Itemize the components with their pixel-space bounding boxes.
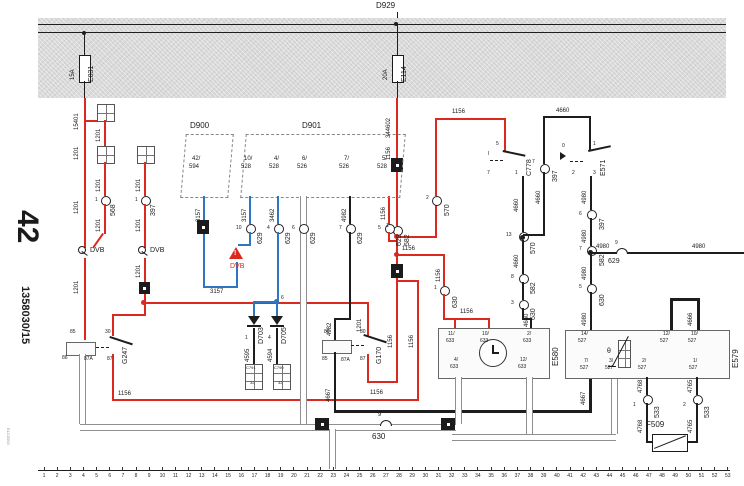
- wire-segment: [435, 204, 437, 238]
- label-4-: 4/: [454, 358, 458, 363]
- label-15401: 15401: [74, 113, 80, 130]
- label-2-: 2/: [642, 359, 646, 364]
- label-1201: 1201: [96, 129, 102, 142]
- wire-segment: [367, 354, 369, 381]
- ruler-number: 22: [315, 473, 325, 479]
- inline-connector-icon: [540, 164, 550, 174]
- multi-pin-connector-icon: [97, 104, 115, 122]
- label-1: 1: [245, 336, 248, 341]
- ruler-number: 50: [683, 473, 693, 479]
- label-87: 87: [360, 357, 366, 362]
- ruler-tick: [464, 467, 465, 471]
- ruler-number: 42: [578, 473, 588, 479]
- label-13: 13: [506, 233, 512, 238]
- label-1: 1: [386, 224, 389, 229]
- ruler-number: 48: [657, 473, 667, 479]
- label-1-: 1/: [693, 359, 697, 364]
- inline-plug-icon: [139, 282, 150, 294]
- ruler-tick: [491, 467, 492, 471]
- label-4980: 4980: [596, 244, 609, 250]
- label-32: 32: [250, 381, 254, 385]
- wire-segment: [435, 118, 506, 120]
- wire-segment: [253, 301, 255, 316]
- inline-plug-icon: [315, 418, 329, 430]
- label-1156: 1156: [402, 246, 415, 252]
- label-d929: D929: [376, 2, 395, 10]
- white-wire: [79, 354, 86, 424]
- ruler-number: 15: [223, 473, 233, 479]
- ruler-number: 51: [697, 473, 707, 479]
- diode-icon: [271, 316, 283, 325]
- inline-connector-icon: [519, 300, 529, 310]
- wire-segment: [590, 252, 744, 254]
- label-12-: 12/: [663, 332, 670, 337]
- label-1156: 1156: [452, 109, 465, 115]
- wire-segment: [38, 24, 726, 25]
- label-86: 86: [62, 356, 68, 361]
- label-527: 527: [660, 339, 668, 344]
- label-4660: 4660: [556, 108, 569, 114]
- wire-segment: [334, 352, 336, 410]
- wire-segment: [543, 172, 545, 234]
- label-42: 42: [12, 210, 42, 243]
- ruler-number: 39: [539, 473, 549, 479]
- label-1: 1: [434, 286, 437, 291]
- label-1358030-15: 1358030/15: [19, 286, 30, 344]
- wire-segment: [112, 399, 418, 401]
- label-1201: 1201: [96, 219, 102, 232]
- label-5-: 5/: [382, 156, 387, 162]
- ruler-tick: [727, 467, 728, 471]
- ruler-tick: [228, 467, 229, 471]
- wire-segment: [398, 254, 445, 256]
- label-1: 1: [135, 198, 138, 203]
- wire-segment: [397, 81, 398, 98]
- ruler-number: 28: [394, 473, 404, 479]
- ruler-tick: [662, 467, 663, 471]
- label-1: 1: [593, 142, 596, 147]
- wire-segment: [367, 302, 369, 336]
- wire-segment: [84, 258, 86, 340]
- wire-segment: [396, 278, 398, 381]
- wire-segment: [589, 377, 592, 411]
- ruler-tick: [83, 467, 84, 471]
- label-4768: 4768: [638, 380, 644, 393]
- label-d703: D703: [258, 327, 265, 344]
- label-e580: E580: [552, 347, 560, 366]
- wire-segment: [417, 280, 419, 401]
- label-5: 5: [496, 142, 499, 147]
- inline-connector-icon: [587, 210, 597, 220]
- ruler-number: 3: [65, 473, 75, 479]
- label-4660: 4660: [514, 199, 520, 212]
- ruler-tick: [201, 467, 202, 471]
- ruler-number: 43: [591, 473, 601, 479]
- inline-connector-icon: [246, 224, 256, 234]
- switch-blade: [110, 336, 133, 345]
- ruler-number: 47: [644, 473, 654, 479]
- wire-segment: [112, 314, 114, 336]
- label-1201: 1201: [136, 265, 142, 278]
- wire-segment: [543, 116, 545, 164]
- label-527: 527: [580, 366, 588, 371]
- label-10-: 10/: [691, 332, 698, 337]
- label-12-: 12/: [520, 358, 527, 363]
- label-1201: 1201: [74, 281, 80, 294]
- label-1: 1: [633, 403, 636, 408]
- ruler-number: 11: [171, 473, 181, 479]
- ruler-tick: [307, 467, 308, 471]
- ruler-number: 4: [78, 473, 88, 479]
- ruler-number: 31: [434, 473, 444, 479]
- inline-connector-icon: [440, 286, 450, 296]
- ruler-tick: [267, 467, 268, 471]
- label-8: 8: [511, 275, 514, 280]
- label-4667: 4667: [326, 389, 332, 402]
- label-3: 3: [511, 301, 514, 306]
- ruler-tick: [504, 467, 505, 471]
- label-527: 527: [638, 366, 646, 371]
- label-630: 630: [372, 433, 385, 441]
- warning-exclamation: !: [234, 250, 236, 257]
- ruler-number: 7: [118, 473, 128, 479]
- ruler-tick: [556, 467, 557, 471]
- wire-segment: [590, 176, 592, 210]
- ruler-tick: [530, 467, 531, 471]
- label-7: 7: [579, 247, 582, 252]
- ruler-tick: [346, 467, 347, 471]
- wire-segment: [84, 81, 85, 98]
- wire-segment: [104, 120, 106, 146]
- label-3: 3: [593, 171, 596, 176]
- wire-segment: [144, 258, 146, 282]
- label-1201: 1201: [357, 319, 363, 332]
- label-1156: 1156: [118, 391, 131, 397]
- label-533: 533: [704, 406, 711, 418]
- ruler-tick: [583, 467, 584, 471]
- label-3-: 3/: [609, 359, 613, 364]
- ruler-number: 37: [512, 473, 522, 479]
- switch-blade: [588, 145, 611, 151]
- wire-segment: [203, 234, 205, 286]
- wire-segment: [670, 298, 700, 301]
- label-4660: 4660: [514, 255, 520, 268]
- wire-segment: [492, 352, 499, 354]
- label-6: 6: [579, 212, 582, 217]
- label-10-: 10/: [482, 332, 489, 337]
- wire-segment: [144, 162, 146, 196]
- ruler-tick: [596, 467, 597, 471]
- label--: θ: [607, 348, 611, 355]
- label-527: 527: [605, 366, 613, 371]
- label-1156: 1156: [409, 335, 415, 348]
- label-g247: G247: [122, 347, 129, 364]
- switch-blade: [364, 334, 387, 343]
- label-1201: 1201: [96, 179, 102, 192]
- ruler-number: 6: [105, 473, 115, 479]
- label-4980: 4980: [582, 191, 588, 204]
- label-629: 629: [357, 232, 364, 244]
- wire-segment: [388, 232, 390, 240]
- label-1156: 1156: [381, 207, 387, 220]
- wire-segment: [397, 25, 398, 55]
- label-527: 527: [688, 339, 696, 344]
- inline-connector-icon: [274, 224, 284, 234]
- wire-segment: [254, 301, 278, 303]
- label-528: 528: [269, 164, 279, 170]
- ruler-tick: [122, 467, 123, 471]
- ruler-number: 34: [473, 473, 483, 479]
- label-3157: 3157: [242, 209, 248, 222]
- wire-segment: [253, 328, 255, 364]
- label-630: 630: [599, 294, 606, 306]
- label-1156: 1156: [460, 309, 473, 315]
- label-4594: 4594: [268, 349, 274, 362]
- label-633: 633: [518, 365, 526, 370]
- label-4666: 4666: [688, 313, 694, 326]
- ruler-tick: [385, 467, 386, 471]
- wire-segment: [277, 196, 279, 224]
- white-wire: [611, 377, 618, 434]
- wire-segment: [590, 218, 592, 246]
- inline-connector-icon: [380, 420, 392, 426]
- label-5: 5: [579, 285, 582, 290]
- ruler-number: 52: [710, 473, 720, 479]
- label-4980: 4980: [582, 267, 588, 280]
- wire-segment: [589, 116, 591, 150]
- ruler-tick: [688, 467, 689, 471]
- wire-segment: [349, 196, 351, 224]
- ruler-tick: [188, 467, 189, 471]
- ruler-tick: [701, 467, 702, 471]
- ruler-tick: [714, 467, 715, 471]
- label-14-: 14/: [581, 332, 588, 337]
- ruler-number: 46: [631, 473, 641, 479]
- ruler-tick: [136, 467, 137, 471]
- ruler-number: 16: [236, 473, 246, 479]
- ruler-number: 35: [486, 473, 496, 479]
- ruler-number: 27: [381, 473, 391, 479]
- label-4667: 4667: [581, 392, 587, 405]
- label-397: 397: [150, 204, 157, 216]
- label-4: 4: [268, 336, 271, 341]
- wire-segment: [104, 204, 106, 234]
- ruler-number: 8: [131, 473, 141, 479]
- ruler-tick: [149, 467, 150, 471]
- wire-segment: [84, 33, 85, 55]
- inline-plug-icon: [197, 220, 209, 234]
- label-e031: E031: [88, 66, 95, 82]
- wire-segment: [522, 240, 524, 274]
- component-box: [322, 340, 352, 354]
- label-570: 570: [530, 242, 537, 254]
- ruler-tick: [635, 467, 636, 471]
- label-4982: 4982: [342, 209, 348, 222]
- wire-segment: [349, 232, 351, 318]
- label-20a: 20A: [383, 69, 389, 80]
- label-6-: 6/: [302, 156, 307, 162]
- wire-segment: [144, 204, 146, 248]
- ruler-number: 41: [565, 473, 575, 479]
- ruler-number: 32: [447, 473, 457, 479]
- wire-segment: [104, 162, 106, 196]
- label-3462: 3462: [270, 209, 276, 222]
- label-e571: E571: [600, 160, 607, 176]
- ruler-number: 19: [276, 473, 286, 479]
- wire-segment: [203, 286, 238, 288]
- label-629: 629: [257, 232, 264, 244]
- ruler-number: 12: [184, 473, 194, 479]
- label-1: 1: [515, 171, 518, 176]
- wire-segment: [697, 298, 700, 330]
- label-dvb: DVB: [150, 247, 164, 254]
- ruler-number: 21: [302, 473, 312, 479]
- label-5: 5: [378, 226, 381, 231]
- label-4980: 4980: [692, 244, 705, 250]
- label-1156: 1156: [388, 335, 394, 348]
- ruler-number: 36: [499, 473, 509, 479]
- wire-segment: [144, 304, 146, 314]
- inline-plug-icon: [441, 418, 455, 430]
- ruler-tick: [399, 467, 400, 471]
- label-528: 528: [241, 164, 251, 170]
- white-wire: [452, 434, 616, 441]
- label-7-: 7/: [344, 156, 349, 162]
- wire-segment: [334, 318, 351, 320]
- label-630: 630: [452, 296, 459, 308]
- label-4980: 4980: [582, 313, 588, 326]
- label-629: 629: [310, 232, 317, 244]
- label-4595: 4595: [245, 349, 251, 362]
- wire-segment: [277, 232, 279, 302]
- label-633: 633: [480, 339, 488, 344]
- ruler-tick: [214, 467, 215, 471]
- wire-segment: [276, 328, 278, 364]
- ruler-number: 2: [52, 473, 62, 479]
- label-568: 568: [110, 204, 117, 216]
- inline-connector-icon: [432, 196, 442, 206]
- wire-segment: [249, 232, 251, 244]
- ruler-tick: [359, 467, 360, 471]
- ruler-number: 29: [407, 473, 417, 479]
- label-c790: C790: [274, 366, 284, 370]
- label-dvb: DVB: [90, 247, 104, 254]
- ruler-number: 17: [249, 473, 259, 479]
- label-42-: 42/: [192, 156, 200, 162]
- ruler-tick: [57, 467, 58, 471]
- wire-segment: [590, 254, 592, 284]
- ruler-number: 33: [460, 473, 470, 479]
- label-4: 4: [267, 226, 270, 231]
- label-d900: D900: [190, 122, 209, 130]
- ruler-number: 38: [526, 473, 536, 479]
- label-elc0093: ELC0093: [6, 428, 10, 445]
- ruler-tick: [175, 467, 176, 471]
- label-344602: 344602: [386, 118, 392, 138]
- wire-segment: [590, 292, 592, 330]
- wire-segment: [203, 196, 205, 220]
- label-633: 633: [523, 339, 531, 344]
- multi-pin-connector-icon: [97, 146, 115, 164]
- label-1201: 1201: [74, 147, 80, 160]
- ruler-tick: [280, 467, 281, 471]
- ruler-tick: [622, 467, 623, 471]
- label-dvb: DVB: [230, 263, 244, 270]
- wire-segment: [367, 381, 398, 383]
- label-2-: 2/: [527, 332, 531, 337]
- label-2: 2: [426, 196, 429, 201]
- label-4982: 4982: [327, 323, 333, 336]
- ruler-number: 9: [144, 473, 154, 479]
- switch-blade: [503, 150, 526, 156]
- ruler-number: 49: [670, 473, 680, 479]
- wire-segment: [543, 116, 591, 118]
- label-1201: 1201: [136, 219, 142, 232]
- dashed-link: [96, 347, 109, 348]
- ruler-tick: [372, 467, 373, 471]
- ruler-tick: [543, 467, 544, 471]
- power-rail-band: [38, 18, 726, 98]
- label-1156: 1156: [436, 269, 442, 282]
- label-582: 582: [599, 254, 606, 266]
- label-2: 2: [683, 403, 686, 408]
- wire-segment: [276, 303, 278, 316]
- ruler-number: 18: [263, 473, 273, 479]
- ruler-tick: [570, 467, 571, 471]
- label-6: 6: [281, 296, 284, 301]
- wire-segment: [38, 32, 726, 33]
- wire-segment: [334, 318, 336, 342]
- dashed-link: [351, 345, 364, 346]
- position-indicator-icon: [560, 152, 566, 160]
- label-e114: E114: [401, 66, 408, 82]
- label-15a: 15A: [70, 69, 76, 80]
- wiring-diagram-sheet: 1000 1010 1000 1010 ! D92915AE03120AE114…: [0, 0, 744, 486]
- label-533: 533: [654, 406, 661, 418]
- wire-segment: [435, 118, 437, 196]
- ruler-number: 44: [604, 473, 614, 479]
- label-9: 9: [378, 412, 381, 418]
- ruler-tick: [425, 467, 426, 471]
- ruler-tick: [517, 467, 518, 471]
- ruler-tick: [109, 467, 110, 471]
- label-87a: 87A: [341, 358, 350, 363]
- label-633: 633: [450, 365, 458, 370]
- wire-segment: [696, 377, 698, 395]
- ruler-tick: [162, 467, 163, 471]
- ruler-number: 25: [355, 473, 365, 479]
- wire-segment: [38, 470, 730, 471]
- wire-segment: [504, 118, 506, 152]
- label-1: 1: [95, 198, 98, 203]
- junction-dot: [520, 235, 525, 240]
- ruler-tick: [477, 467, 478, 471]
- label-397: 397: [552, 170, 559, 182]
- ruler-tick: [333, 467, 334, 471]
- label-629: 629: [285, 232, 292, 244]
- label-582: 582: [404, 234, 411, 246]
- ruler-number: 5: [92, 473, 102, 479]
- wire-segment: [443, 254, 445, 286]
- label-3157: 3157: [196, 209, 202, 222]
- white-wire: [80, 424, 456, 431]
- label-c791: C791: [246, 366, 256, 370]
- wire-segment: [334, 410, 592, 413]
- ruler-tick: [675, 467, 676, 471]
- label-4768: 4768: [638, 420, 644, 433]
- label-6: 6: [292, 226, 295, 231]
- ruler-tick: [412, 467, 413, 471]
